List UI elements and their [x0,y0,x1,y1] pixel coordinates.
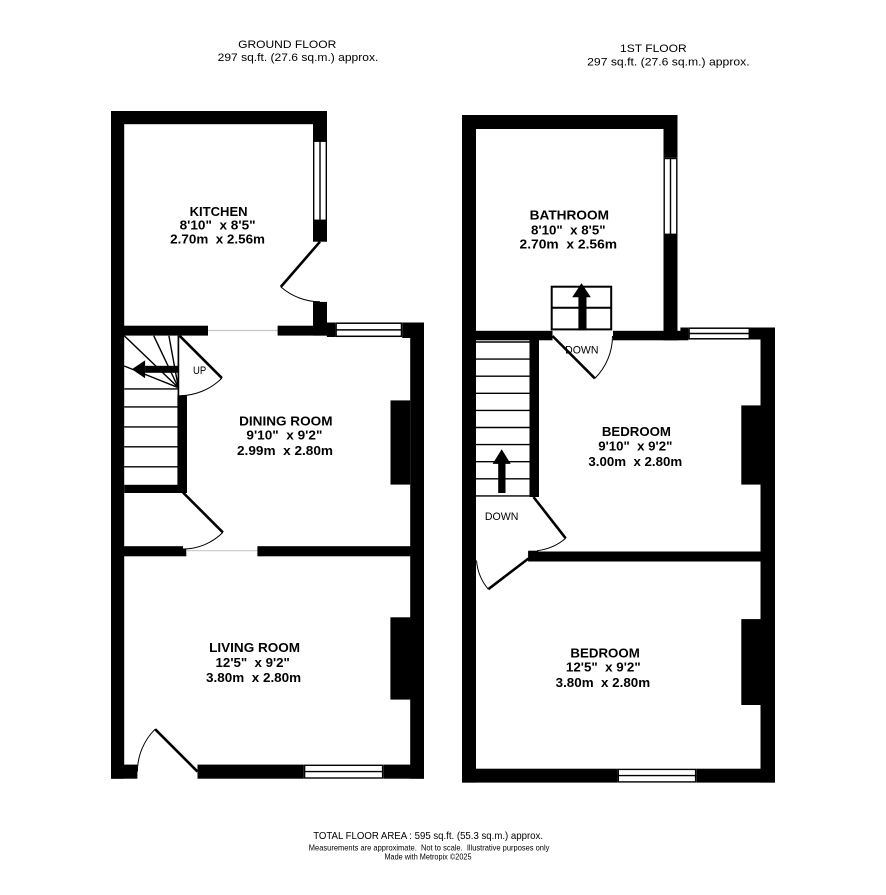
svg-text:Measurements are approximate.: Measurements are approximate. Not to sca… [309,844,550,853]
svg-text:2.70m x 2.56m: 2.70m x 2.56m [520,237,618,252]
svg-text:DINING ROOM: DINING ROOM [239,413,332,428]
svg-text:LIVING ROOM: LIVING ROOM [209,640,300,655]
svg-text:DOWN: DOWN [565,345,598,357]
svg-text:TOTAL FLOOR AREA : 595 sq.ft.: TOTAL FLOOR AREA : 595 sq.ft. (55.3 sq.m… [313,831,543,842]
svg-text:9'10" x 9'2": 9'10" x 9'2" [246,428,322,443]
svg-text:Made with Metropix ©2025: Made with Metropix ©2025 [384,852,472,861]
svg-text:8'10" x 8'5": 8'10" x 8'5" [180,218,256,233]
svg-text:297 sq.ft. (27.6 sq.m.) approx: 297 sq.ft. (27.6 sq.m.) approx. [587,57,750,69]
svg-text:297 sq.ft. (27.6 sq.m.) approx: 297 sq.ft. (27.6 sq.m.) approx. [218,52,379,64]
svg-text:2.70m x 2.56m: 2.70m x 2.56m [170,232,265,247]
svg-text:1ST FLOOR: 1ST FLOOR [620,43,687,55]
svg-text:2.99m x 2.80m: 2.99m x 2.80m [237,443,333,458]
svg-text:GROUND FLOOR: GROUND FLOOR [238,39,337,51]
svg-text:DOWN: DOWN [485,511,519,523]
svg-text:BEDROOM: BEDROOM [570,645,639,660]
svg-text:3.80m x 2.80m: 3.80m x 2.80m [206,670,301,685]
svg-text:3.00m x 2.80m: 3.00m x 2.80m [588,454,682,469]
svg-text:8'10" x 8'5": 8'10" x 8'5" [531,223,606,238]
svg-text:9'10" x 9'2": 9'10" x 9'2" [598,439,672,454]
svg-text:BATHROOM: BATHROOM [530,208,609,223]
svg-text:KITCHEN: KITCHEN [190,204,248,219]
svg-text:12'5" x 9'2": 12'5" x 9'2" [566,660,641,675]
svg-text:12'5" x 9'2": 12'5" x 9'2" [216,655,290,670]
svg-text:UP: UP [193,365,206,377]
svg-text:3.80m x 2.80m: 3.80m x 2.80m [556,675,651,690]
svg-text:BEDROOM: BEDROOM [602,424,671,439]
